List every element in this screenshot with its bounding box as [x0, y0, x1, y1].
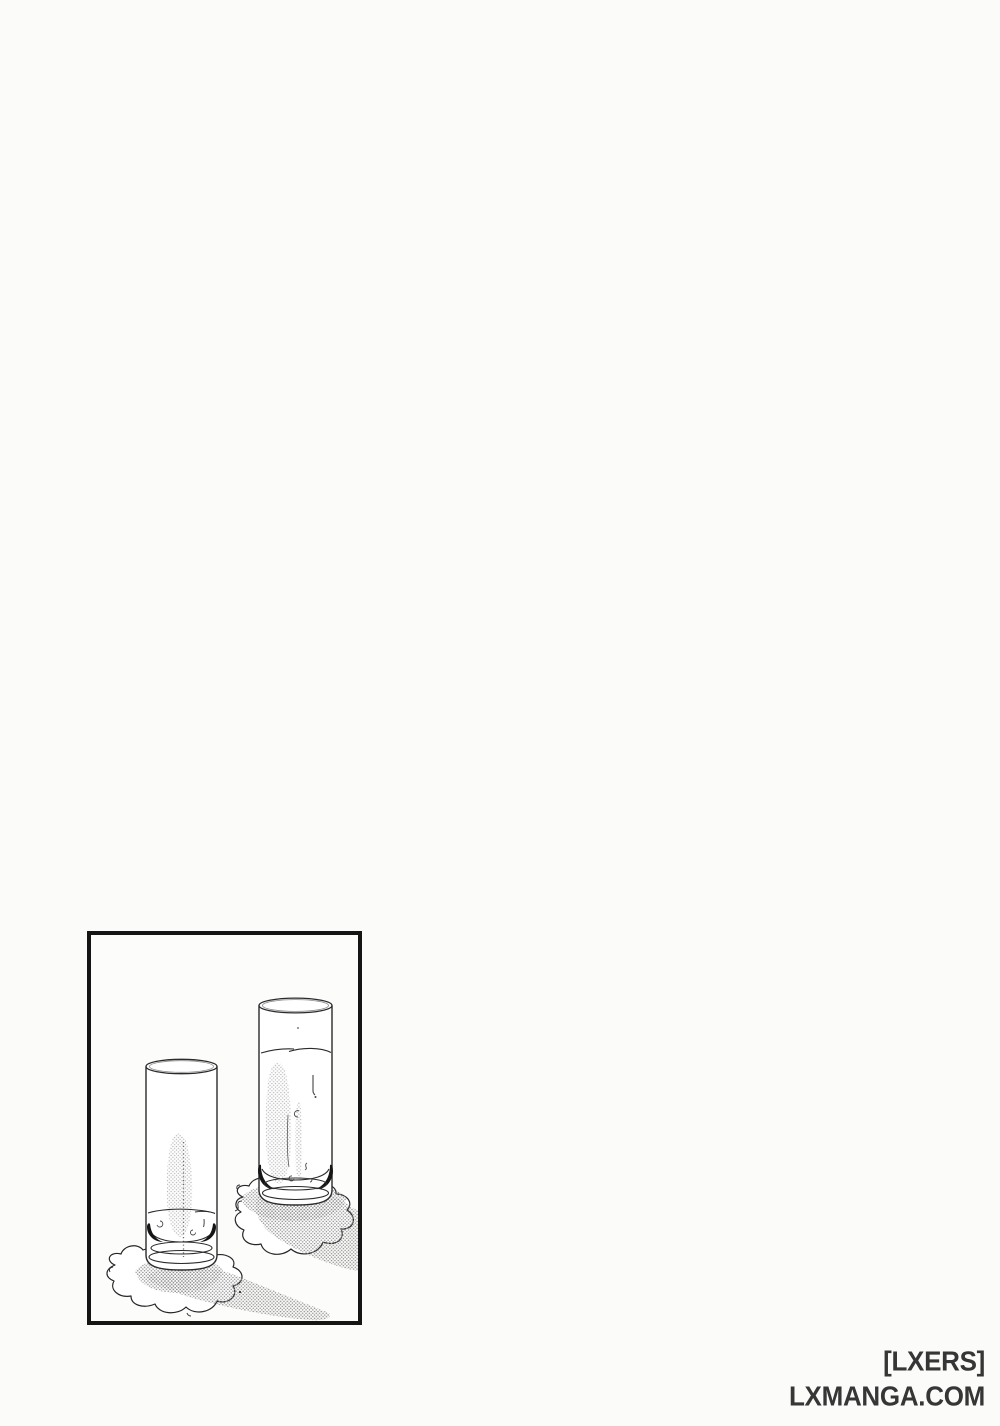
splash-curl: [187, 1313, 191, 1316]
bubble: [315, 1096, 317, 1098]
two-water-glasses-illustration: [91, 935, 358, 1321]
water-reflection-tone: [295, 1102, 301, 1179]
droplet: [239, 1291, 241, 1293]
manga-page: [LXERS] LXMANGA.COM: [0, 0, 1000, 1426]
watermark: [LXERS] LXMANGA.COM: [789, 1344, 985, 1414]
watermark-line-2: LXMANGA.COM: [789, 1379, 985, 1414]
bubble: [297, 1027, 299, 1029]
right-glass-spill: [235, 998, 358, 1271]
watermark-line-1: [LXERS]: [789, 1344, 985, 1379]
manga-panel: [87, 931, 362, 1325]
